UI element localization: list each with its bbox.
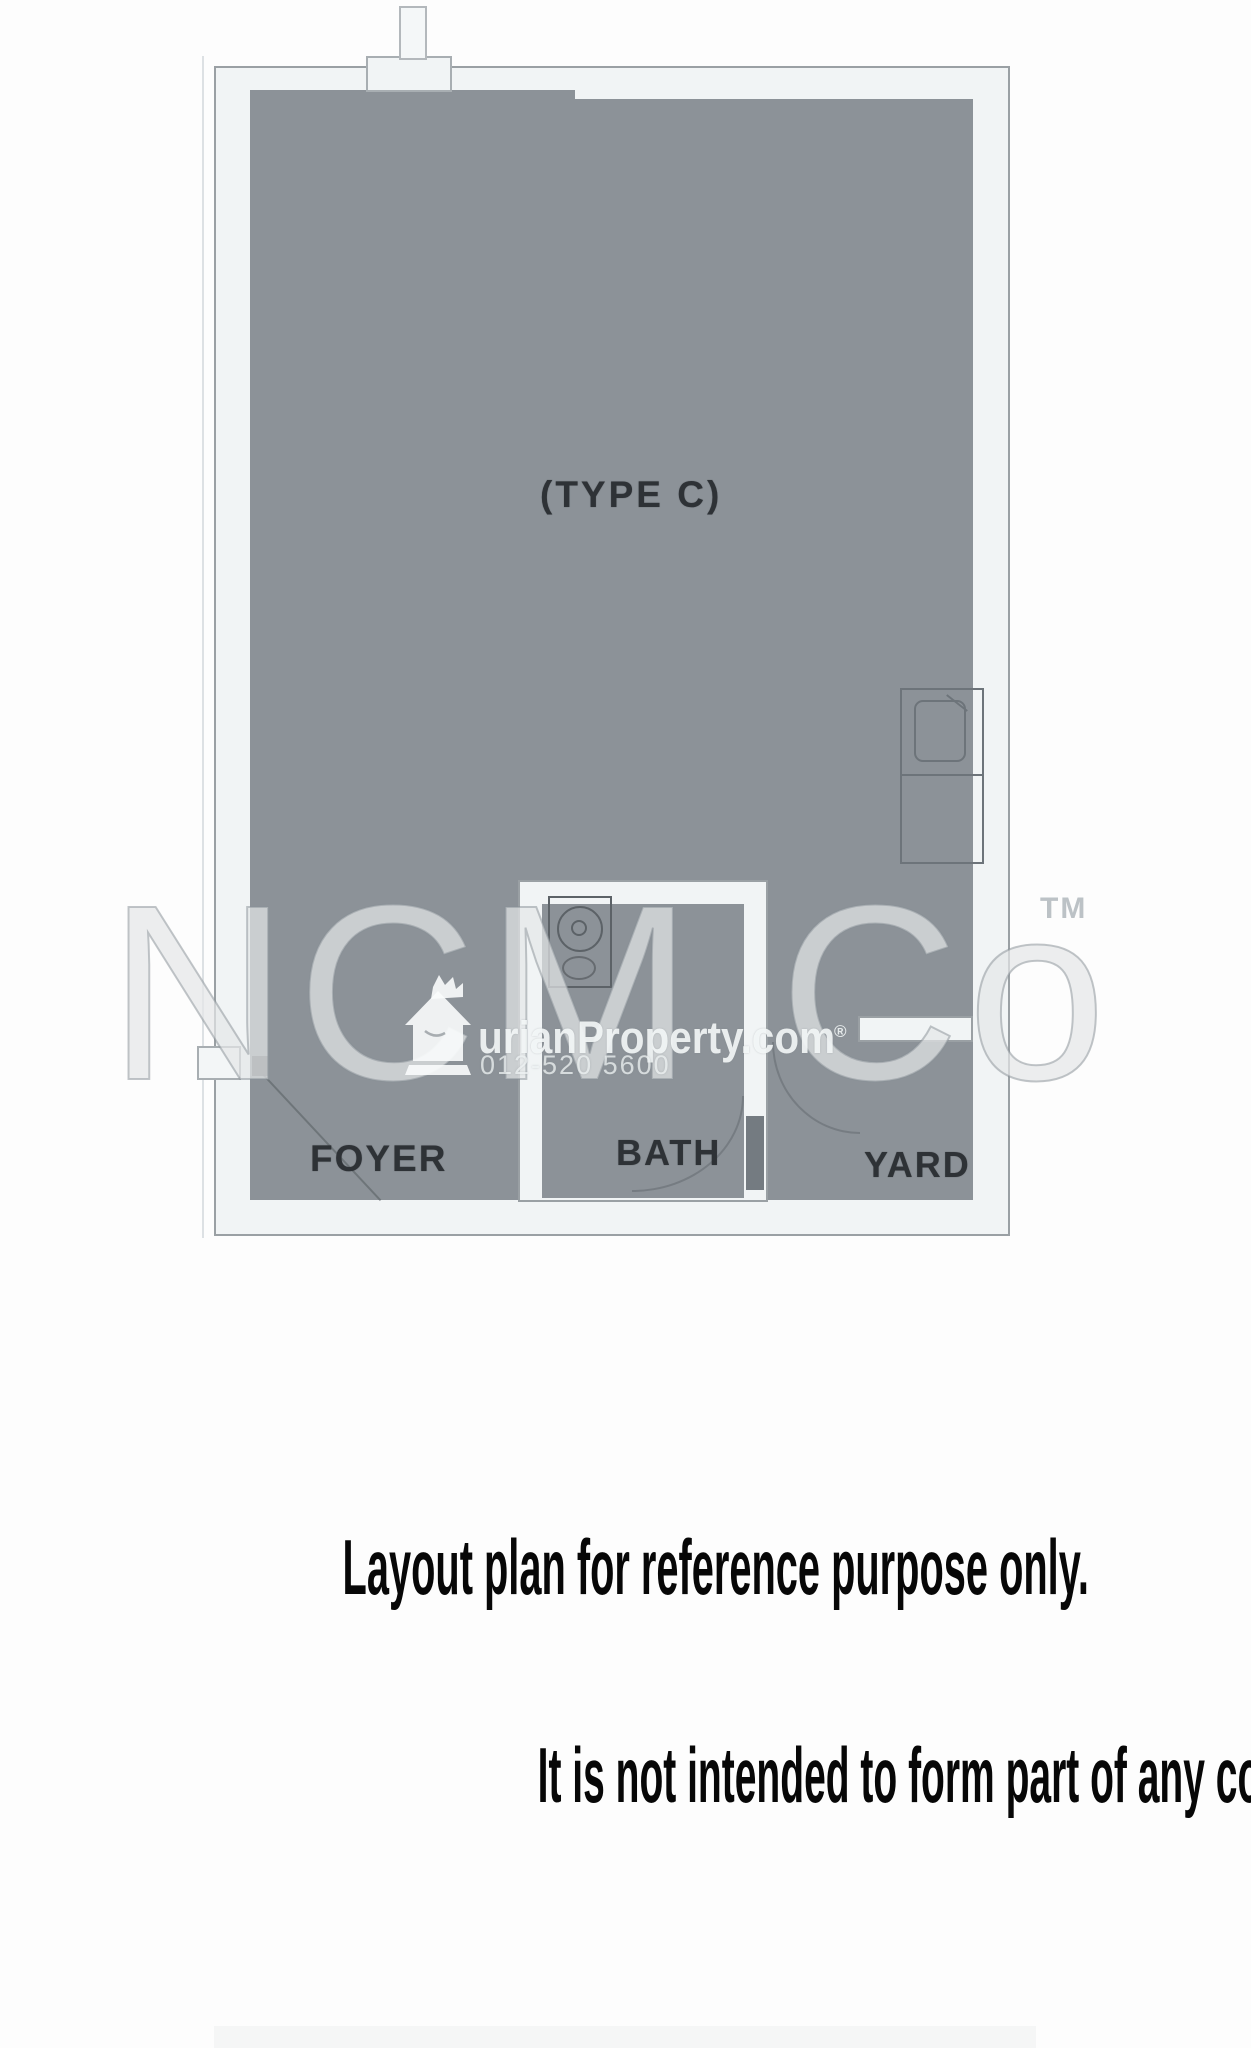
footer-scan-strip: [214, 2026, 1036, 2048]
disclaimer-line-1-text: Layout plan for reference purpose only.: [343, 1522, 1089, 1613]
durian-house-crown-icon: [405, 975, 471, 1075]
unit-type-label: (TYPE C): [540, 474, 722, 516]
top-wall-stub-thin: [399, 6, 427, 60]
top-wall-stub-wide: [366, 56, 452, 92]
floor-plan-page: (TYPE C) FOYER BATH YARD NCM Co TM urian…: [0, 0, 1251, 2048]
portal-phone-number: 012-520 5600: [480, 1050, 671, 1081]
wall-cabinet-divider: [900, 774, 984, 776]
room-label-foyer: FOYER: [310, 1138, 447, 1180]
disclaimer-line-2-text: It is not intended to form part of any c…: [538, 1730, 1251, 1821]
disclaimer-line-2: It is not intended to form part of any c…: [6, 1730, 1251, 1821]
agency-trademark-mark: TM: [1040, 892, 1087, 926]
registered-trademark-icon: ®: [834, 1022, 847, 1042]
top-wall-step: [575, 90, 973, 99]
property-portal-watermark: urianProperty.com ® 012-520 5600: [398, 950, 888, 1085]
disclaimer-line-1: Layout plan for reference purpose only.: [0, 1522, 1235, 1613]
room-label-yard: YARD: [864, 1144, 971, 1186]
room-label-bath: BATH: [616, 1132, 721, 1174]
wall-cabinet-sink: [914, 700, 966, 762]
